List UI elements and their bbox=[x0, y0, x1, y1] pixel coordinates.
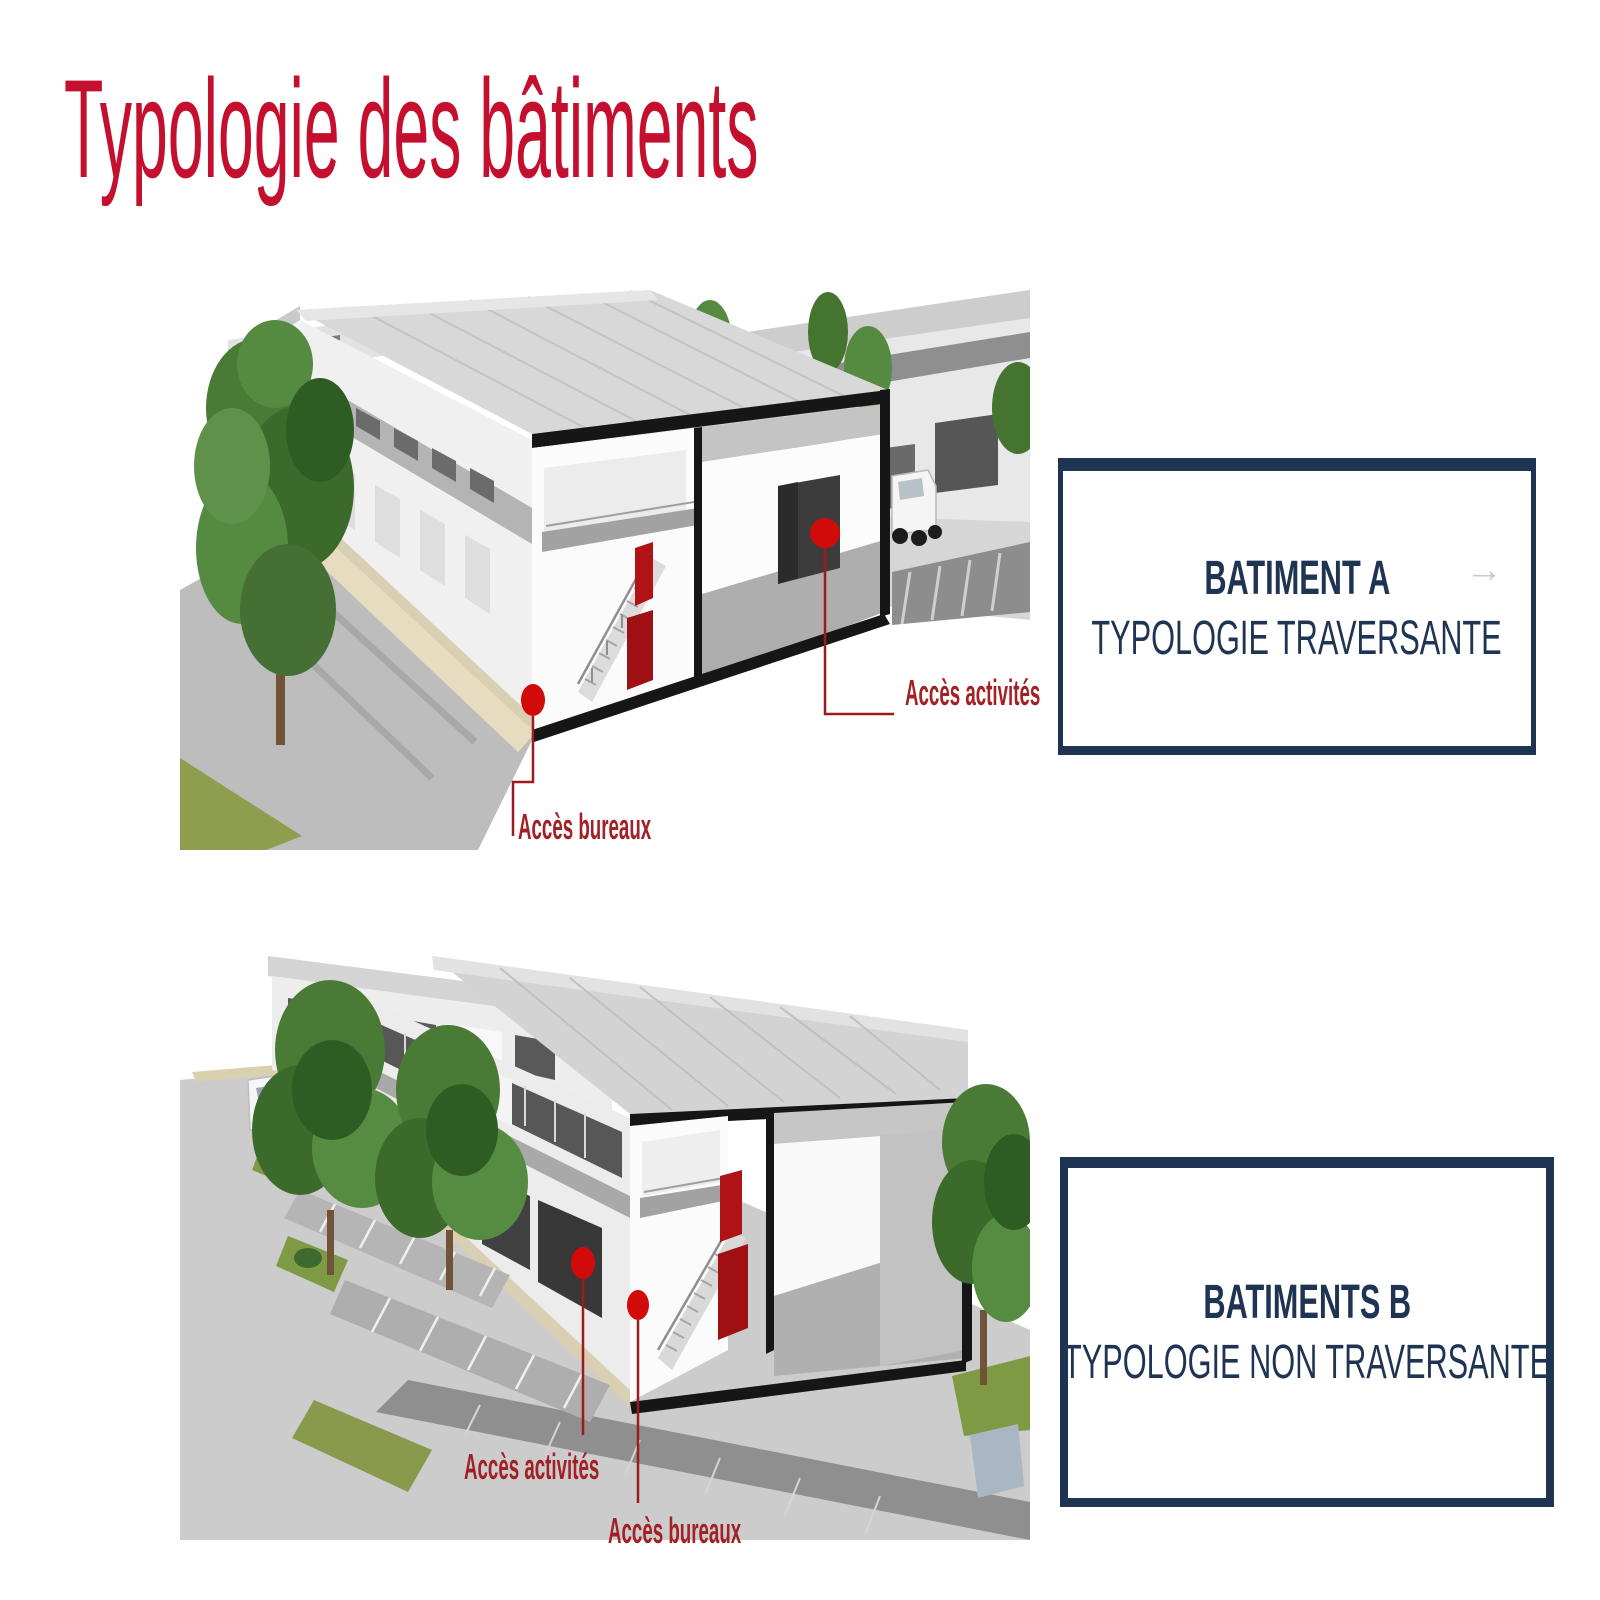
annotation-acces-activites-b: Accès activités bbox=[464, 1446, 599, 1488]
annotation-acces-activites-a: Accès activités bbox=[905, 672, 1040, 714]
illustration-batiment-a-render bbox=[180, 280, 1030, 850]
slide-canvas: { "slide": { "title": "Typologie des bât… bbox=[0, 0, 1600, 1600]
arrow-right-icon: → bbox=[1465, 549, 1503, 592]
caption-box-batiments-b: BATIMENTS B TYPOLOGIE NON TRAVERSANTE bbox=[1060, 1157, 1554, 1507]
caption-subtitle-batiments-b: TYPOLOGIE NON TRAVERSANTE bbox=[1063, 1333, 1550, 1393]
annotation-acces-bureaux-a: Accès bureaux bbox=[518, 806, 651, 848]
slide-title: Typologie des bâtiments bbox=[64, 48, 759, 210]
truck bbox=[892, 470, 942, 546]
figure-batiments-b bbox=[180, 930, 1030, 1540]
marker-acces-bureaux-a bbox=[521, 684, 545, 716]
marker-acces-bureaux-b bbox=[627, 1290, 649, 1320]
marker-acces-activites-a bbox=[810, 518, 840, 548]
annotation-acces-bureaux-b: Accès bureaux bbox=[608, 1510, 741, 1552]
illustration-batiments-b-render bbox=[180, 930, 1030, 1540]
marker-acces-activites-b bbox=[571, 1247, 595, 1279]
figure-batiment-a bbox=[180, 280, 1030, 850]
caption-subtitle-batiment-a: TYPOLOGIE TRAVERSANTE bbox=[1092, 609, 1502, 669]
caption-box-batiment-a: BATIMENT A TYPOLOGIE TRAVERSANTE → bbox=[1058, 458, 1536, 755]
caption-title-batiment-a: BATIMENT A bbox=[1204, 549, 1390, 609]
caption-title-batiments-b: BATIMENTS B bbox=[1203, 1273, 1411, 1333]
